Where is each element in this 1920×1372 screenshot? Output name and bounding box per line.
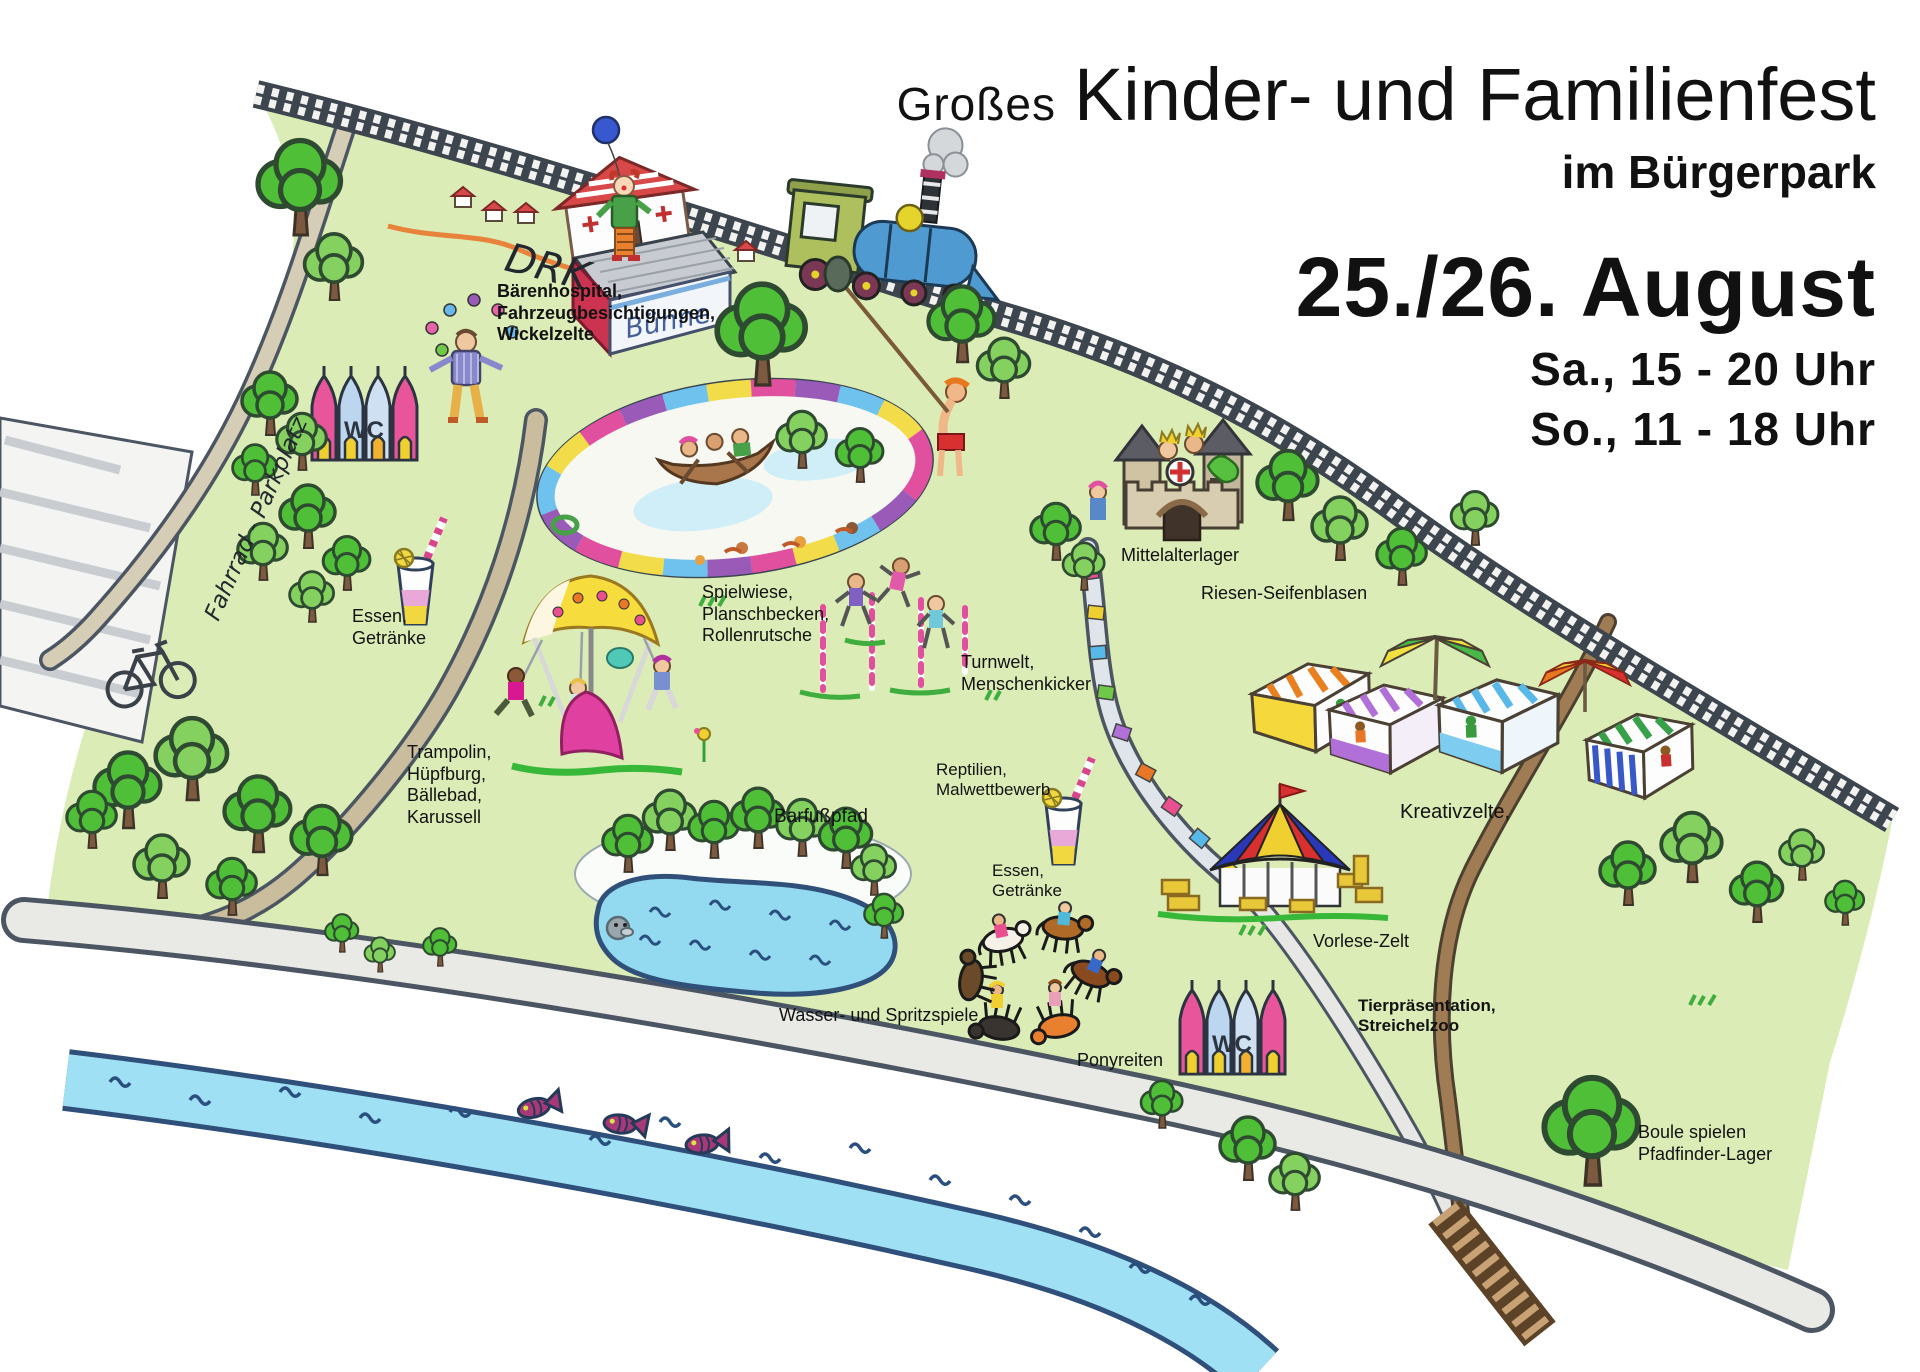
poster-header: Großes Kinder- und Familienfest im Bürge…: [897, 52, 1876, 456]
bicycle-parking-area: [0, 418, 197, 742]
title-row: Großes Kinder- und Familienfest: [897, 52, 1876, 137]
festival-map-poster: Bühne: [0, 0, 1920, 1372]
event-date: 25./26. August: [897, 239, 1876, 336]
title-prefix: Großes: [897, 77, 1056, 131]
river: [66, 1078, 1258, 1372]
sunday-hours: So., 11 - 18 Uhr: [897, 402, 1876, 456]
subtitle: im Bürgerpark: [897, 145, 1876, 199]
page-title: Kinder- und Familienfest: [1074, 52, 1876, 137]
bridge: [1444, 1212, 1540, 1334]
saturday-hours: Sa., 15 - 20 Uhr: [897, 342, 1876, 396]
wc-ost-label: WC: [1212, 1031, 1252, 1058]
wc-west-label: WC: [344, 417, 384, 444]
